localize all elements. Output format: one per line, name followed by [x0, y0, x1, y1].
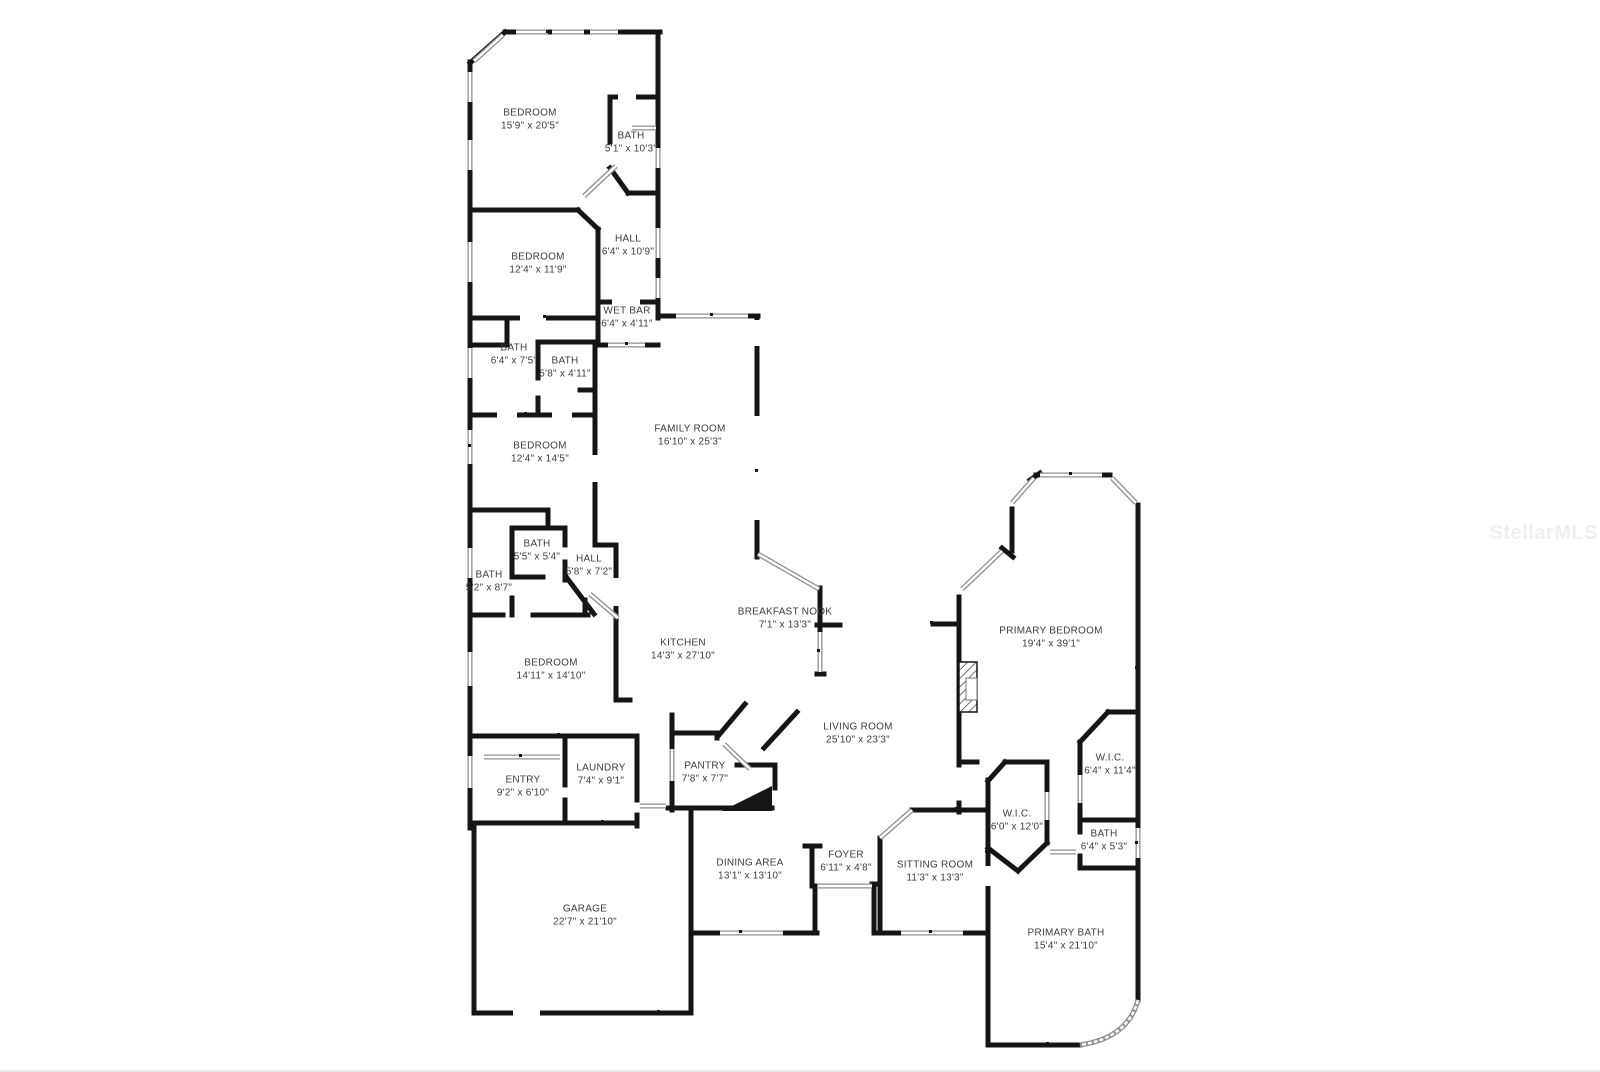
room-name: W.I.C. — [1084, 753, 1136, 766]
room-label-bedroom-2: BEDROOM 12'4" x 11'9" — [509, 252, 566, 277]
room-dims: 7'8" x 7'7" — [682, 773, 728, 786]
room-dims: 16'10" x 25'3" — [654, 436, 725, 449]
room-name: FAMILY ROOM — [654, 424, 725, 437]
room-dims: 5'5" x 5'4" — [514, 551, 560, 564]
room-dims: 11'3" x 13'3" — [897, 872, 973, 885]
room-dims: 9'2" x 6'10" — [497, 787, 549, 800]
room-dims: 6'0" x 12'0" — [991, 821, 1043, 834]
room-label-family-room: FAMILY ROOM 16'10" x 25'3" — [654, 424, 725, 449]
room-label-pantry: PANTRY 7'8" x 7'7" — [682, 761, 728, 786]
room-dims: 12'4" x 14'5" — [511, 453, 569, 466]
room-dims: 5'8" x 4'11" — [539, 368, 591, 381]
room-dims: 5'2" x 8'7" — [466, 582, 512, 595]
room-name: BREAKFAST NOOK — [738, 607, 832, 620]
room-label-sitting-room: SITTING ROOM 11'3" x 13'3" — [897, 860, 973, 885]
room-dims: 14'3" x 27'10" — [651, 650, 715, 663]
room-name: BATH — [605, 131, 657, 144]
room-name: BATH — [491, 343, 537, 356]
room-label-wic-1: W.I.C. 6'4" x 11'4" — [1084, 753, 1136, 778]
room-label-breakfast-nook: BREAKFAST NOOK 7'1" x 13'3" — [738, 607, 832, 632]
room-name: SITTING ROOM — [897, 860, 973, 873]
room-name: HALL — [566, 554, 612, 567]
room-dims: 7'4" x 9'1" — [576, 775, 625, 788]
room-label-bedroom-4: BEDROOM 14'11" x 14'10" — [517, 658, 586, 683]
room-label-primary-bedroom: PRIMARY BEDROOM 19'4" x 39'1" — [999, 626, 1102, 651]
room-name: GARAGE — [553, 904, 617, 917]
room-label-bath-5: BATH 5'2" x 8'7" — [466, 570, 512, 595]
room-dims: 6'4" x 5'3" — [1081, 841, 1127, 854]
watermark: StellarMLS — [1490, 522, 1598, 545]
room-name: BEDROOM — [509, 252, 566, 265]
room-name: BATH — [539, 356, 591, 369]
room-dims: 5'8" x 7'2" — [566, 566, 612, 579]
room-name: BATH — [1081, 829, 1127, 842]
room-dims: 25'10" x 23'3" — [823, 734, 892, 747]
room-dims: 5'1" x 10'3" — [605, 143, 657, 156]
room-name: WET BAR — [601, 306, 653, 319]
room-label-entry: ENTRY 9'2" x 6'10" — [497, 775, 549, 800]
room-dims: 19'4" x 39'1" — [999, 638, 1102, 651]
room-dims: 22'7" x 21'10" — [553, 916, 617, 929]
room-dims: 6'4" x 10'9" — [602, 246, 654, 259]
room-name: PRIMARY BATH — [1028, 928, 1105, 941]
room-name: PANTRY — [682, 761, 728, 774]
room-name: FOYER — [820, 850, 872, 863]
floor-plan-drawing — [0, 0, 1600, 1070]
room-name: PRIMARY BEDROOM — [999, 626, 1102, 639]
room-name: KITCHEN — [651, 638, 715, 651]
room-label-primary-bath: PRIMARY BATH 15'4" x 21'10" — [1028, 928, 1105, 953]
room-label-hall-1: HALL 6'4" x 10'9" — [602, 234, 654, 259]
room-label-bath-2: BATH 6'4" x 7'5" — [491, 343, 537, 368]
room-label-bath-6: BATH 6'4" x 5'3" — [1081, 829, 1127, 854]
floor-plan-page: BEDROOM 15'9" x 20'5" BATH 5'1" x 10'3" … — [0, 0, 1600, 1072]
room-dims: 6'11" x 4'8" — [820, 862, 872, 875]
fireplace — [959, 662, 977, 712]
room-label-bath-3: BATH 5'8" x 4'11" — [539, 356, 591, 381]
walls — [470, 32, 1138, 1045]
room-label-bath-4: BATH 5'5" x 5'4" — [514, 539, 560, 564]
room-label-bedroom-3: BEDROOM 12'4" x 14'5" — [511, 441, 569, 466]
room-label-laundry: LAUNDRY 7'4" x 9'1" — [576, 763, 625, 788]
room-dims: 7'1" x 13'3" — [738, 619, 832, 632]
room-name: BEDROOM — [511, 441, 569, 454]
room-name: LAUNDRY — [576, 763, 625, 776]
room-name: ENTRY — [497, 775, 549, 788]
room-dims: 6'4" x 7'5" — [491, 355, 537, 368]
room-name: BEDROOM — [501, 108, 559, 121]
room-dims: 15'9" x 20'5" — [501, 120, 559, 133]
room-name: W.I.C. — [991, 809, 1043, 822]
room-label-bedroom-1: BEDROOM 15'9" x 20'5" — [501, 108, 559, 133]
room-dims: 13'1" x 13'10" — [716, 870, 783, 883]
room-label-kitchen: KITCHEN 14'3" x 27'10" — [651, 638, 715, 663]
room-name: BEDROOM — [517, 658, 586, 671]
room-dims: 15'4" x 21'10" — [1028, 940, 1105, 953]
room-label-wet-bar: WET BAR 6'4" x 4'11" — [601, 306, 653, 331]
room-name: DINING AREA — [716, 858, 783, 871]
room-label-hall-2: HALL 5'8" x 7'2" — [566, 554, 612, 579]
room-dims: 6'4" x 4'11" — [601, 318, 653, 331]
room-name: BATH — [466, 570, 512, 583]
dimension-ticks — [468, 30, 1138, 1045]
kitchen-wedge — [722, 786, 772, 811]
room-label-living-room: LIVING ROOM 25'10" x 23'3" — [823, 722, 892, 747]
room-name: HALL — [602, 234, 654, 247]
room-name: BATH — [514, 539, 560, 552]
room-label-bath-1: BATH 5'1" x 10'3" — [605, 131, 657, 156]
room-dims: 14'11" x 14'10" — [517, 670, 586, 683]
room-name: LIVING ROOM — [823, 722, 892, 735]
room-dims: 6'4" x 11'4" — [1084, 765, 1136, 778]
room-dims: 12'4" x 11'9" — [509, 264, 566, 277]
room-label-garage: GARAGE 22'7" x 21'10" — [553, 904, 617, 929]
room-label-dining-area: DINING AREA 13'1" x 13'10" — [716, 858, 783, 883]
room-label-foyer: FOYER 6'11" x 4'8" — [820, 850, 872, 875]
windows — [470, 32, 1138, 1045]
room-label-wic-2: W.I.C. 6'0" x 12'0" — [991, 809, 1043, 834]
